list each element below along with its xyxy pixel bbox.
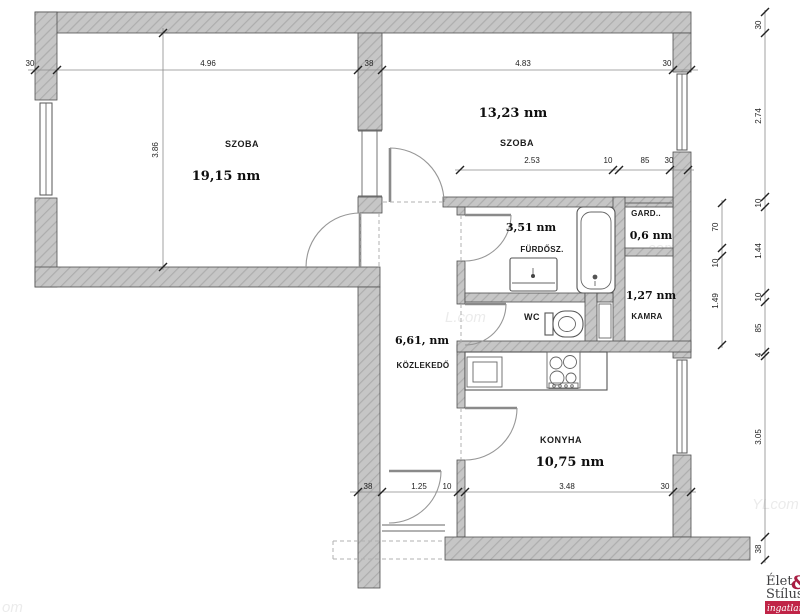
room-area-kozlekedo: 6,61, nm	[395, 334, 449, 347]
dim-label: 10	[443, 482, 452, 491]
logo-badge-text: ingatlan	[767, 604, 800, 614]
bathtub	[577, 207, 615, 293]
watermark: YLcom	[752, 496, 799, 513]
floor-plan-drawing: L.com com YLcom om	[0, 0, 800, 614]
dim-label: 1.25	[411, 482, 427, 491]
dim-label: 30	[665, 156, 674, 165]
watermark: L.com	[445, 309, 486, 326]
agency-logo: Élet & Stílus ingatlan	[765, 572, 800, 614]
dim-label: 1.44	[754, 243, 763, 259]
watermark: om	[2, 599, 23, 614]
room-area-szoba1: 19,15 nm	[192, 169, 261, 184]
room-area-konyha: 10,75 nm	[536, 455, 605, 470]
dim-label: 30	[663, 59, 672, 68]
room-area-furdoszoba: 3,51 nm	[506, 221, 557, 234]
dim-label: 10	[754, 198, 763, 207]
room-area-gardrob: 0,6 nm	[630, 229, 673, 242]
dim-label: 4	[754, 352, 763, 357]
dim-label: 2.53	[524, 156, 540, 165]
toilet	[545, 311, 583, 337]
dim-label: 30	[754, 20, 763, 29]
dim-label: 4.96	[200, 59, 216, 68]
dim-label: 3.86	[151, 142, 160, 158]
dim-label: 10	[711, 258, 720, 267]
kitchen-counter	[465, 352, 607, 390]
dim-label: 3.05	[754, 429, 763, 445]
logo-line2: Stílus	[766, 587, 800, 602]
dim-label: 10	[754, 292, 763, 301]
window-room2	[677, 74, 687, 150]
room-area-kamra: 1,27 nm	[626, 289, 677, 302]
window-kitchen	[677, 360, 687, 453]
dim-label: 38	[365, 59, 374, 68]
dim-label: 3.48	[559, 482, 575, 491]
window-left	[40, 103, 52, 195]
bathroom-sink	[510, 258, 557, 291]
room-name-kamra: KAMRA	[631, 312, 662, 321]
room-name-furdoszoba: FÜRDŐSZ.	[520, 245, 563, 254]
dim-label: 30	[26, 59, 35, 68]
dim-label: 85	[754, 323, 763, 332]
dim-label: 38	[754, 544, 763, 553]
dim-label: 1.49	[711, 293, 720, 309]
room-name-kozlekedo: KÖZLEKEDŐ	[397, 361, 450, 370]
room-name-szoba2: SZOBA	[500, 138, 534, 148]
dim-label: 85	[641, 156, 650, 165]
dim-label: 70	[711, 222, 720, 231]
dim-label: 4.83	[515, 59, 531, 68]
dim-label: 10	[604, 156, 613, 165]
room-name-gardrob: GARD..	[631, 209, 661, 218]
room-area-szoba2: 13,23 nm	[479, 106, 548, 121]
dim-label: 30	[661, 482, 670, 491]
room-name-konyha: KONYHA	[540, 435, 582, 445]
dim-label: 2.74	[754, 108, 763, 124]
dim-label: 38	[364, 482, 373, 491]
room-name-szoba1: SZOBA	[225, 139, 259, 149]
room-name-wc: WC	[524, 312, 540, 322]
floor-plan-page: L.com com YLcom om	[0, 0, 800, 614]
